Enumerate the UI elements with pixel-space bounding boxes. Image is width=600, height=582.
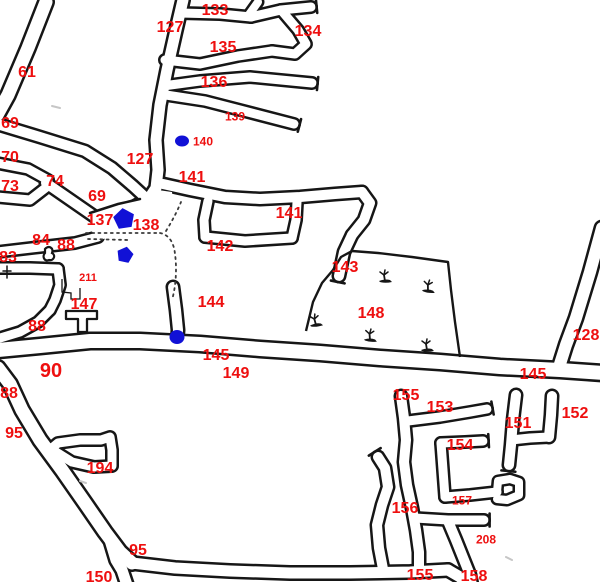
tree-icon bbox=[364, 329, 378, 343]
blue-pentagon-marker bbox=[118, 247, 134, 263]
map-label-141: 141 bbox=[179, 169, 206, 186]
map-label-136: 136 bbox=[201, 74, 228, 91]
map-label-127: 127 bbox=[127, 151, 154, 168]
map-label-145: 145 bbox=[203, 347, 230, 364]
map-label-73: 73 bbox=[1, 178, 19, 195]
footpath-plaza-row2 bbox=[88, 239, 128, 240]
blue-dot-marker bbox=[175, 136, 189, 147]
map-label-155: 155 bbox=[393, 387, 420, 404]
map-label-152: 152 bbox=[562, 405, 589, 422]
road-151-down-endcap bbox=[501, 470, 515, 471]
map-label-140: 140 bbox=[193, 134, 213, 148]
map-label-151: 151 bbox=[505, 415, 532, 432]
road-151-cross bbox=[511, 437, 549, 440]
map-label-153: 153 bbox=[427, 399, 454, 416]
map-label-142: 142 bbox=[207, 238, 234, 255]
road-133-east-endcap bbox=[316, 0, 317, 13]
map-label-90: 90 bbox=[40, 360, 62, 382]
map-label-83: 83 bbox=[0, 249, 17, 266]
map-label-157: 157 bbox=[452, 493, 472, 507]
map-label-194: 194 bbox=[87, 460, 114, 477]
road-151-up bbox=[549, 396, 552, 437]
road-145-149-main bbox=[0, 341, 600, 373]
tree-icon bbox=[309, 313, 323, 327]
map-label-69: 69 bbox=[1, 115, 19, 132]
road-154-endcap bbox=[488, 434, 489, 447]
map-label-61: 61 bbox=[18, 64, 36, 81]
t-shaped-building bbox=[66, 311, 97, 332]
map-label-155: 155 bbox=[407, 567, 434, 582]
map-label-156: 156 bbox=[392, 500, 419, 517]
tree-icon bbox=[379, 270, 392, 283]
map-label-143: 143 bbox=[332, 259, 359, 276]
map-label-147: 147 bbox=[71, 296, 98, 313]
map-label-145: 145 bbox=[520, 366, 547, 383]
map-label-141: 141 bbox=[276, 205, 303, 222]
map-label-154: 154 bbox=[447, 437, 474, 454]
map-label-158: 158 bbox=[461, 568, 488, 582]
map-label-208: 208 bbox=[476, 532, 496, 546]
scan-smudge bbox=[52, 106, 60, 108]
map-canvas: 6169707374691271331341351361391401271411… bbox=[0, 0, 600, 582]
map-label-69: 69 bbox=[88, 188, 106, 205]
map-label-135: 135 bbox=[210, 39, 237, 56]
map-label-144: 144 bbox=[198, 294, 225, 311]
map-label-127: 127 bbox=[157, 19, 184, 36]
road-142-west bbox=[204, 201, 208, 237]
map-label-70: 70 bbox=[1, 149, 19, 166]
road-61 bbox=[0, 2, 46, 115]
blue-dot-marker bbox=[170, 330, 185, 344]
small-outline-blob bbox=[44, 247, 55, 260]
road-154-drop bbox=[441, 443, 445, 497]
road-north-of-139-endcap bbox=[317, 77, 318, 90]
road-157-hook bbox=[497, 479, 519, 500]
road-83 bbox=[0, 268, 58, 269]
map-image: 6169707374691271331341351361391401271411… bbox=[0, 0, 600, 582]
map-label-150: 150 bbox=[86, 569, 113, 582]
map-label-211: 211 bbox=[79, 272, 97, 284]
map-label-137: 137 bbox=[87, 212, 114, 229]
scan-smudge bbox=[506, 557, 512, 560]
tree-icon bbox=[421, 339, 434, 352]
map-label-74: 74 bbox=[46, 173, 64, 190]
map-label-128: 128 bbox=[573, 327, 600, 344]
map-label-149: 149 bbox=[223, 365, 250, 382]
tree-icon bbox=[422, 279, 437, 293]
map-label-95: 95 bbox=[129, 542, 147, 559]
map-label-88: 88 bbox=[28, 318, 46, 335]
map-label-139: 139 bbox=[225, 109, 245, 123]
map-label-95: 95 bbox=[5, 425, 23, 442]
map-label-138: 138 bbox=[133, 217, 160, 234]
map-label-134: 134 bbox=[295, 23, 322, 40]
map-label-148: 148 bbox=[358, 305, 385, 322]
map-label-133: 133 bbox=[202, 2, 229, 19]
map-label-84: 84 bbox=[32, 232, 50, 249]
map-label-88: 88 bbox=[0, 385, 18, 402]
map-label-88: 88 bbox=[57, 237, 75, 254]
